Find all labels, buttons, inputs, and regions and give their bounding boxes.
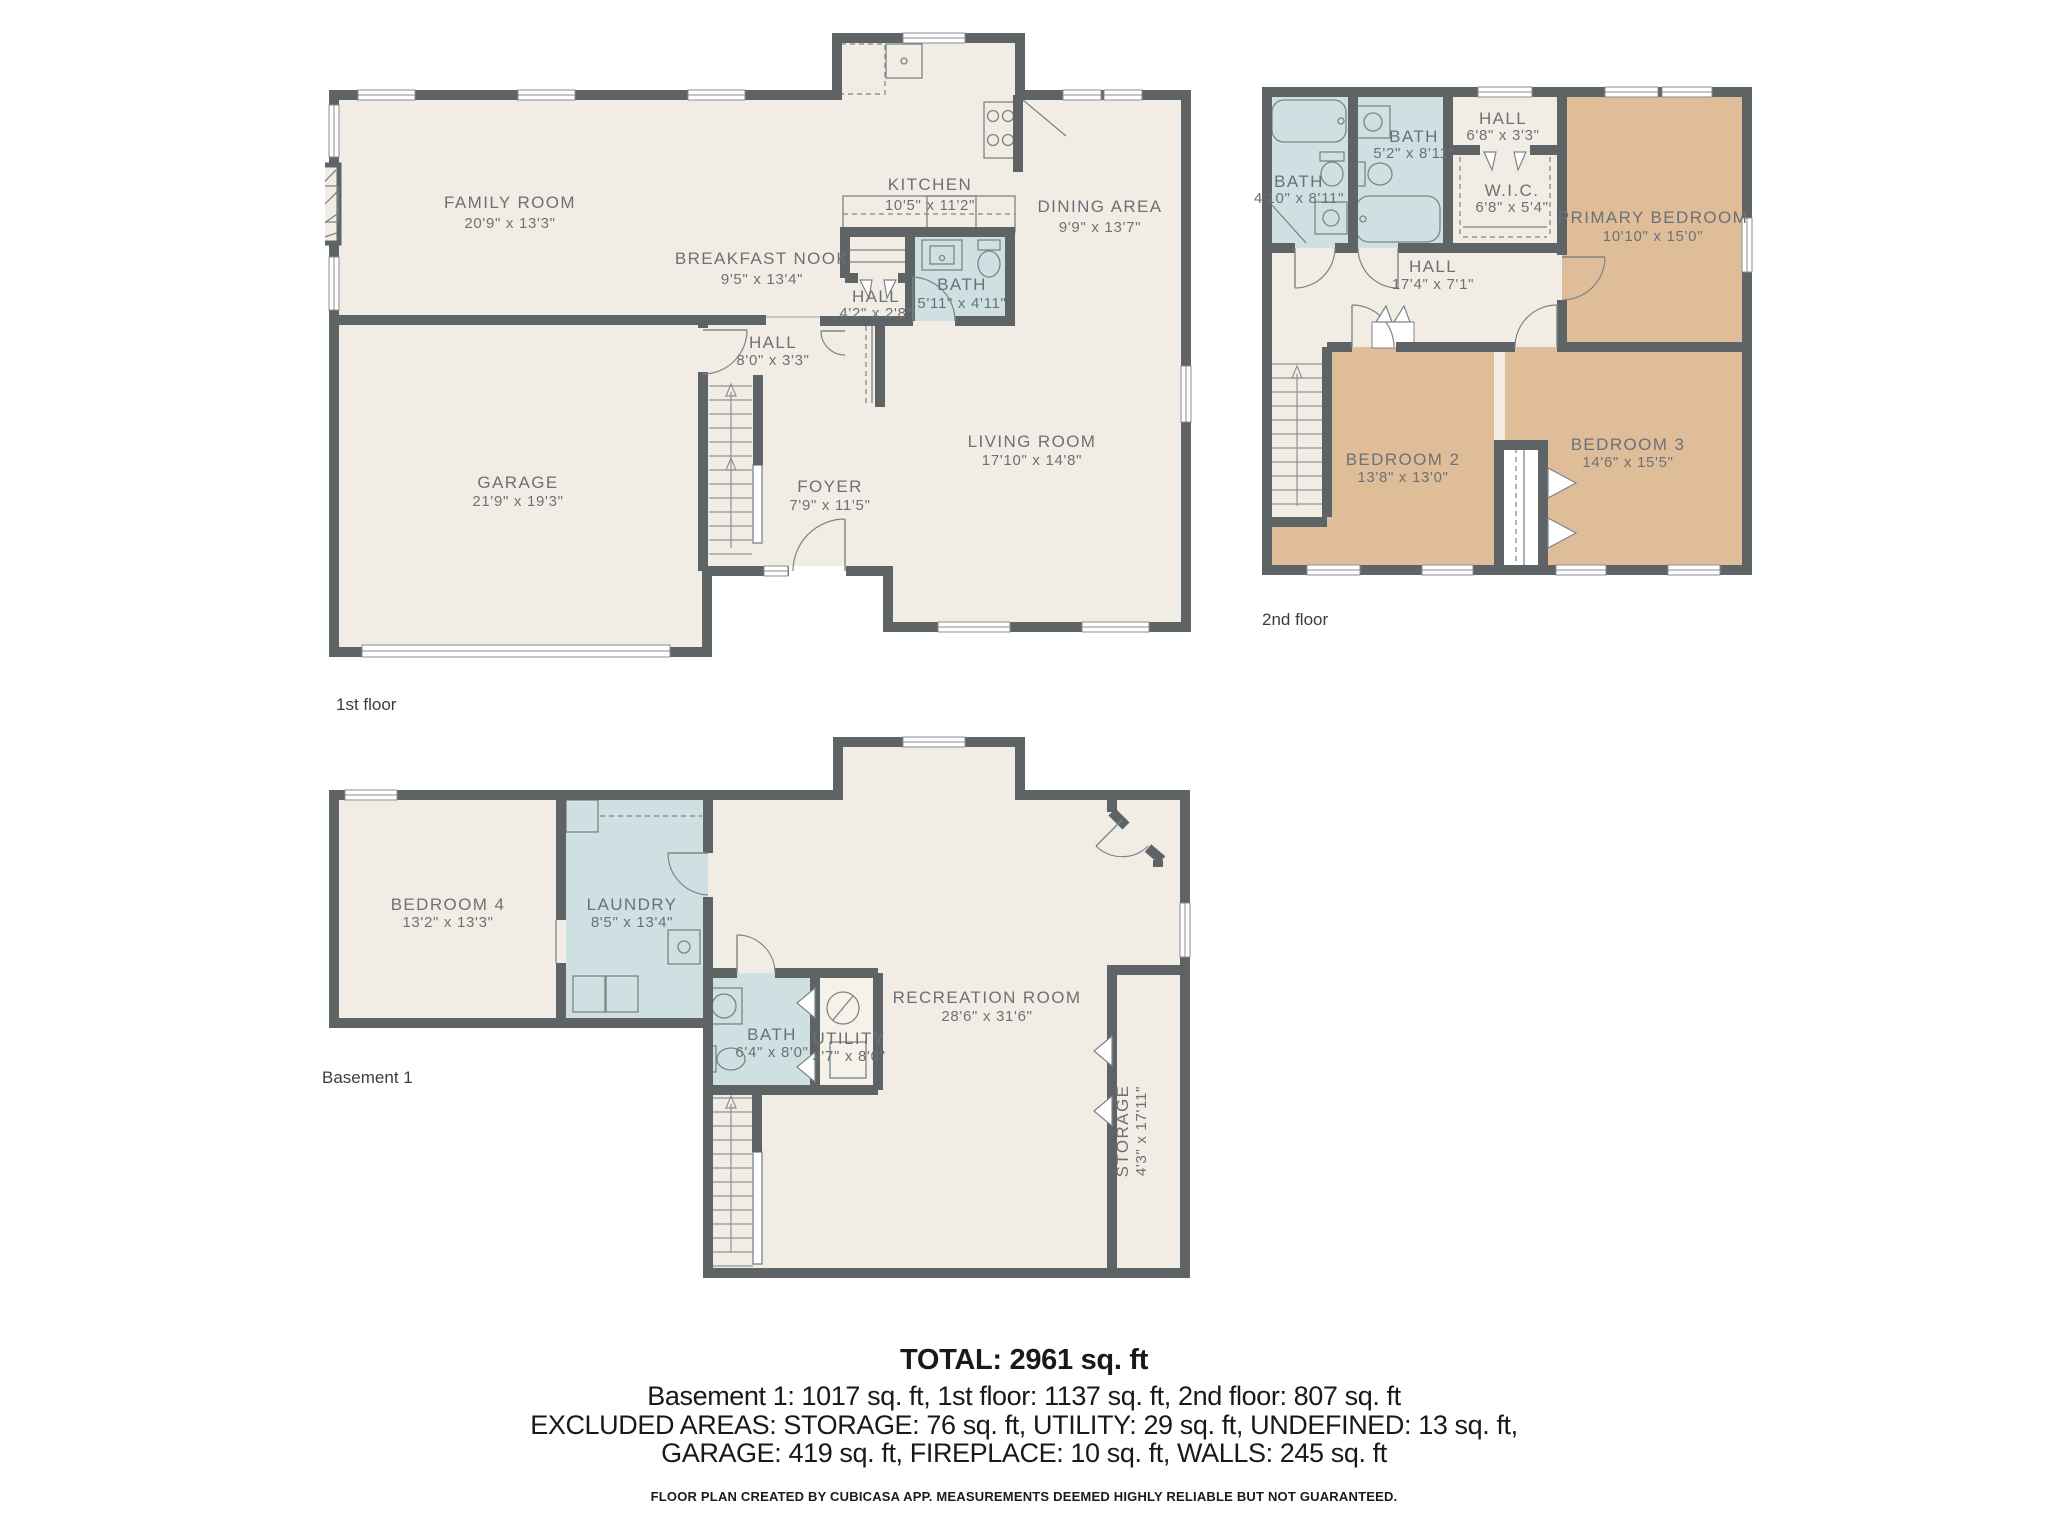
garage-door — [362, 645, 670, 657]
room-dims: 10'5" x 11'2" — [885, 197, 975, 214]
room-dims: 6'4" x 8'0" — [735, 1044, 808, 1061]
room-dims: 13'2" x 13'3" — [402, 914, 493, 931]
room-dims: 5'2" x 8'11" — [1373, 145, 1454, 162]
room-dims: 9'9" x 13'7" — [1059, 219, 1141, 236]
caption-basement: Basement 1 — [322, 1068, 413, 1088]
room-label: DINING AREA — [1038, 197, 1163, 216]
window — [1104, 90, 1142, 100]
room-bedroom-2-nook — [1267, 527, 1327, 570]
caption-second-floor: 2nd floor — [1262, 610, 1328, 630]
room-dims: 6'8" x 3'3" — [1466, 127, 1539, 144]
window — [1605, 87, 1658, 97]
room-label: RECREATION ROOM — [893, 988, 1082, 1007]
window-sidelite — [764, 566, 788, 576]
fireplace — [325, 165, 339, 243]
room-label: BATH — [937, 275, 987, 294]
excluded-areas-2: GARAGE: 419 sq. ft, FIREPLACE: 10 sq. ft… — [0, 1438, 2048, 1469]
window — [1556, 565, 1606, 575]
room-dims: 14'6" x 15'5" — [1582, 454, 1673, 471]
room-dims: 3'7" x 8'0" — [812, 1048, 885, 1065]
front-door-opening — [789, 566, 846, 576]
second-floor-plan: BATH 4'10" x 8'11" BATH 5'2" x 8'11" HAL… — [1252, 80, 1767, 585]
room-label: BREAKFAST NOOK — [675, 249, 849, 268]
floor-areas: Basement 1: 1017 sq. ft, 1st floor: 1137… — [0, 1381, 2048, 1412]
room-label: BEDROOM 3 — [1571, 435, 1686, 454]
room-dims: 7'9" x 11'5" — [789, 497, 870, 514]
window — [1181, 366, 1191, 422]
window — [1063, 90, 1101, 100]
room-dims: 8'0" x 3'3" — [736, 352, 809, 369]
room-label: BATH — [1389, 127, 1439, 146]
caption-first-floor: 1st floor — [336, 695, 396, 715]
room-label: HALL — [1409, 257, 1457, 276]
room-label: UTILITY — [812, 1029, 885, 1048]
room-label: PRIMARY BEDROOM — [1558, 208, 1748, 227]
room-label: FAMILY ROOM — [444, 193, 576, 212]
window — [1662, 87, 1712, 97]
room-dims: 9'5" x 13'4" — [721, 271, 803, 288]
window — [1180, 903, 1190, 957]
room-dims: 20'9" x 13'3" — [464, 215, 555, 232]
window — [345, 790, 397, 800]
room-dims: 28'6" x 31'6" — [941, 1008, 1032, 1025]
total-area: TOTAL: 2961 sq. ft — [0, 1344, 2048, 1377]
room-label: BATH — [1274, 172, 1324, 191]
window — [903, 33, 965, 43]
room-dims: 5'11" x 4'11" — [917, 295, 1006, 312]
room-label: HALL — [749, 333, 797, 352]
room-dims: 4'2" x 2'8" — [839, 305, 912, 322]
window — [938, 622, 1010, 632]
room-label: W.I.C. — [1485, 181, 1540, 200]
stair-rail — [753, 1152, 762, 1264]
excluded-areas-1: EXCLUDED AREAS: STORAGE: 76 sq. ft, UTIL… — [0, 1410, 2048, 1441]
room-dims: 13'8" x 13'0" — [1357, 469, 1448, 486]
window — [1478, 87, 1532, 97]
room-bath-1 — [1267, 92, 1353, 248]
window — [329, 257, 339, 310]
room-label: LIVING ROOM — [968, 432, 1097, 451]
room-label: STORAGE — [1113, 1085, 1132, 1178]
window — [1668, 565, 1720, 575]
room-label: BATH — [747, 1025, 797, 1044]
stair-rail — [753, 465, 762, 543]
room-label: HALL — [852, 287, 900, 306]
room-dims: 21'9" x 19'3" — [472, 493, 563, 510]
basement-plan: BEDROOM 4 13'2" x 13'3" LAUNDRY 8'5" x 1… — [315, 730, 1200, 1290]
room-label: KITCHEN — [888, 175, 972, 194]
window — [1422, 565, 1473, 575]
window — [1307, 565, 1360, 575]
room-dims: 17'10" x 14'8" — [982, 452, 1082, 469]
room-dims: 6'8" x 5'4" — [1475, 199, 1548, 216]
window — [688, 90, 745, 100]
room-label: BEDROOM 2 — [1346, 450, 1461, 469]
window — [358, 90, 415, 100]
room-label: LAUNDRY — [587, 895, 678, 914]
first-floor-plan: FAMILY ROOM 20'9" x 13'3" BREAKFAST NOOK… — [325, 10, 1205, 670]
window — [518, 90, 575, 100]
room-dims: 4'10" x 8'11" — [1254, 190, 1344, 207]
window — [903, 737, 965, 747]
disclaimer: FLOOR PLAN CREATED BY CUBICASA APP. MEAS… — [0, 1489, 2048, 1504]
window — [329, 105, 339, 157]
room-dims: 4'3" x 17'11" — [1133, 1086, 1150, 1176]
room-dims: 10'10" x 15'0" — [1603, 228, 1703, 245]
room-dims: 8'5" x 13'4" — [591, 914, 673, 931]
room-label: FOYER — [797, 477, 863, 496]
second-floor-room-fills — [1267, 92, 1747, 570]
room-label: GARAGE — [477, 473, 558, 492]
room-label: BEDROOM 4 — [391, 895, 506, 914]
floor-plan-page: FAMILY ROOM 20'9" x 13'3" BREAKFAST NOOK… — [0, 0, 2048, 1536]
room-dims: 17'4" x 7'1" — [1392, 276, 1474, 293]
window — [1082, 622, 1149, 632]
room-label: HALL — [1479, 109, 1527, 128]
